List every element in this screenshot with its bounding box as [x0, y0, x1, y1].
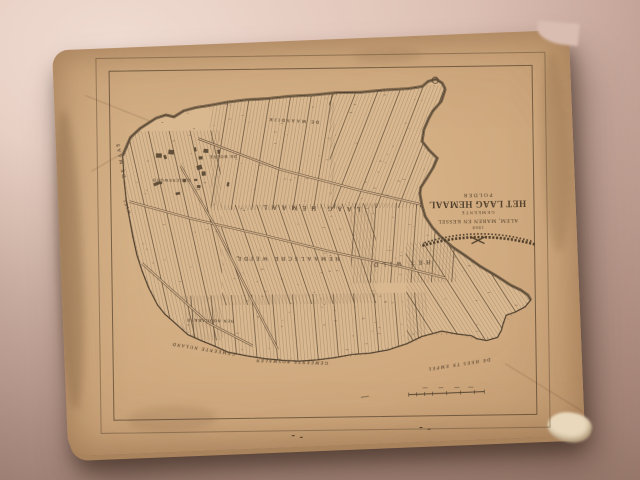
ink-speck-2: [300, 437, 303, 438]
map-outer-border: LAAG HEMAAL HEMAALSCHE WEIDE HET WILD DE…: [95, 52, 550, 434]
title-alem-maren-kessel: ALEM, MAREN EN KESSEL: [418, 216, 538, 225]
torn-corner-top-right: [536, 21, 580, 46]
ink-speck-1: [292, 435, 295, 436]
map-title-block: POLDER HET LAAG HEMAAL GEMEENTE ALEM, MA…: [417, 190, 538, 253]
photo-background: LAAG HEMAAL HEMAALSCHE WEIDE HET WILD DE…: [0, 0, 640, 480]
label-groenewoud: GROENEWOUD: [152, 178, 191, 182]
label-region-laag-hemaal: LAAG HEMAAL: [258, 203, 361, 212]
title-wreath-ornament: [418, 230, 538, 253]
label-region-hemaalsche-weide: HEMAALSCHE WEIDE: [235, 254, 340, 260]
map-inner-border: LAAG HEMAAL HEMAALSCHE WEIDE HET WILD DE…: [109, 65, 538, 421]
polder-map: LAAG HEMAAL HEMAALSCHE WEIDE HET WILD DE…: [110, 66, 537, 420]
atlas-board-page: LAAG HEMAAL HEMAALSCHE WEIDE HET WILD DE…: [52, 30, 585, 456]
grime-stain-left-edge: [50, 110, 88, 411]
title-het-laag-hemaal: HET LAAG HEMAAL: [417, 197, 537, 210]
label-de-hoeve: DE HOEVE: [209, 154, 237, 158]
label-den-hoogakker: DEN HOOGAKKER: [186, 318, 234, 323]
chipped-corner-bottom-right: [544, 407, 594, 448]
